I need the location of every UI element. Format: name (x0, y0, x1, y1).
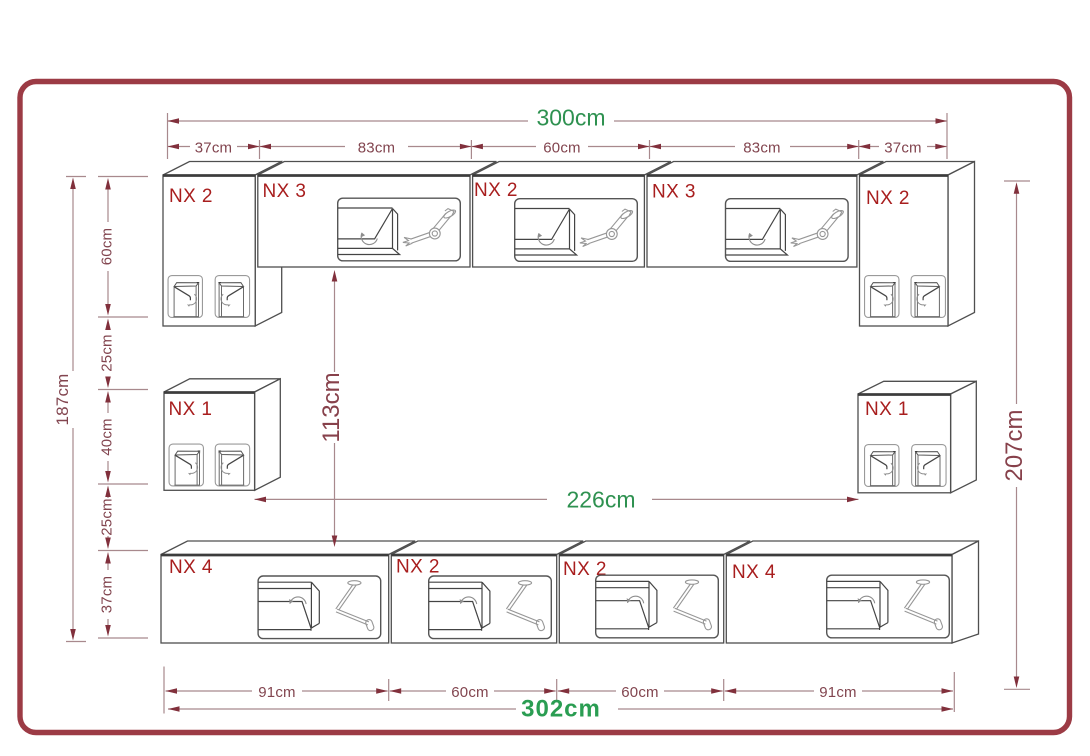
svg-text:37cm: 37cm (884, 140, 921, 157)
svg-text:NX 4: NX 4 (169, 557, 213, 578)
svg-text:25cm: 25cm (98, 334, 115, 371)
svg-text:25cm: 25cm (98, 498, 115, 535)
svg-text:83cm: 83cm (743, 140, 780, 157)
svg-text:91cm: 91cm (819, 684, 856, 701)
svg-text:NX 2: NX 2 (866, 188, 910, 209)
svg-text:207cm: 207cm (1001, 409, 1028, 481)
svg-text:83cm: 83cm (358, 140, 395, 157)
svg-text:37cm: 37cm (98, 576, 115, 613)
svg-text:113cm: 113cm (318, 372, 345, 442)
svg-text:60cm: 60cm (621, 684, 658, 701)
svg-text:60cm: 60cm (451, 684, 488, 701)
svg-text:NX 2: NX 2 (396, 557, 440, 578)
svg-text:NX 1: NX 1 (169, 399, 213, 420)
svg-text:37cm: 37cm (195, 140, 232, 157)
svg-text:NX 3: NX 3 (263, 181, 307, 202)
svg-text:40cm: 40cm (98, 418, 115, 455)
svg-text:302cm: 302cm (521, 696, 601, 723)
svg-text:226cm: 226cm (566, 487, 635, 513)
svg-text:91cm: 91cm (258, 684, 295, 701)
svg-text:NX 1: NX 1 (865, 399, 909, 420)
svg-text:300cm: 300cm (536, 105, 605, 131)
svg-text:NX 3: NX 3 (652, 182, 696, 203)
svg-text:60cm: 60cm (543, 140, 580, 157)
svg-text:NX 2: NX 2 (474, 180, 518, 201)
svg-text:NX 2: NX 2 (169, 186, 213, 207)
svg-text:NX 4: NX 4 (732, 562, 776, 583)
svg-text:60cm: 60cm (98, 228, 115, 265)
svg-text:187cm: 187cm (53, 373, 72, 425)
